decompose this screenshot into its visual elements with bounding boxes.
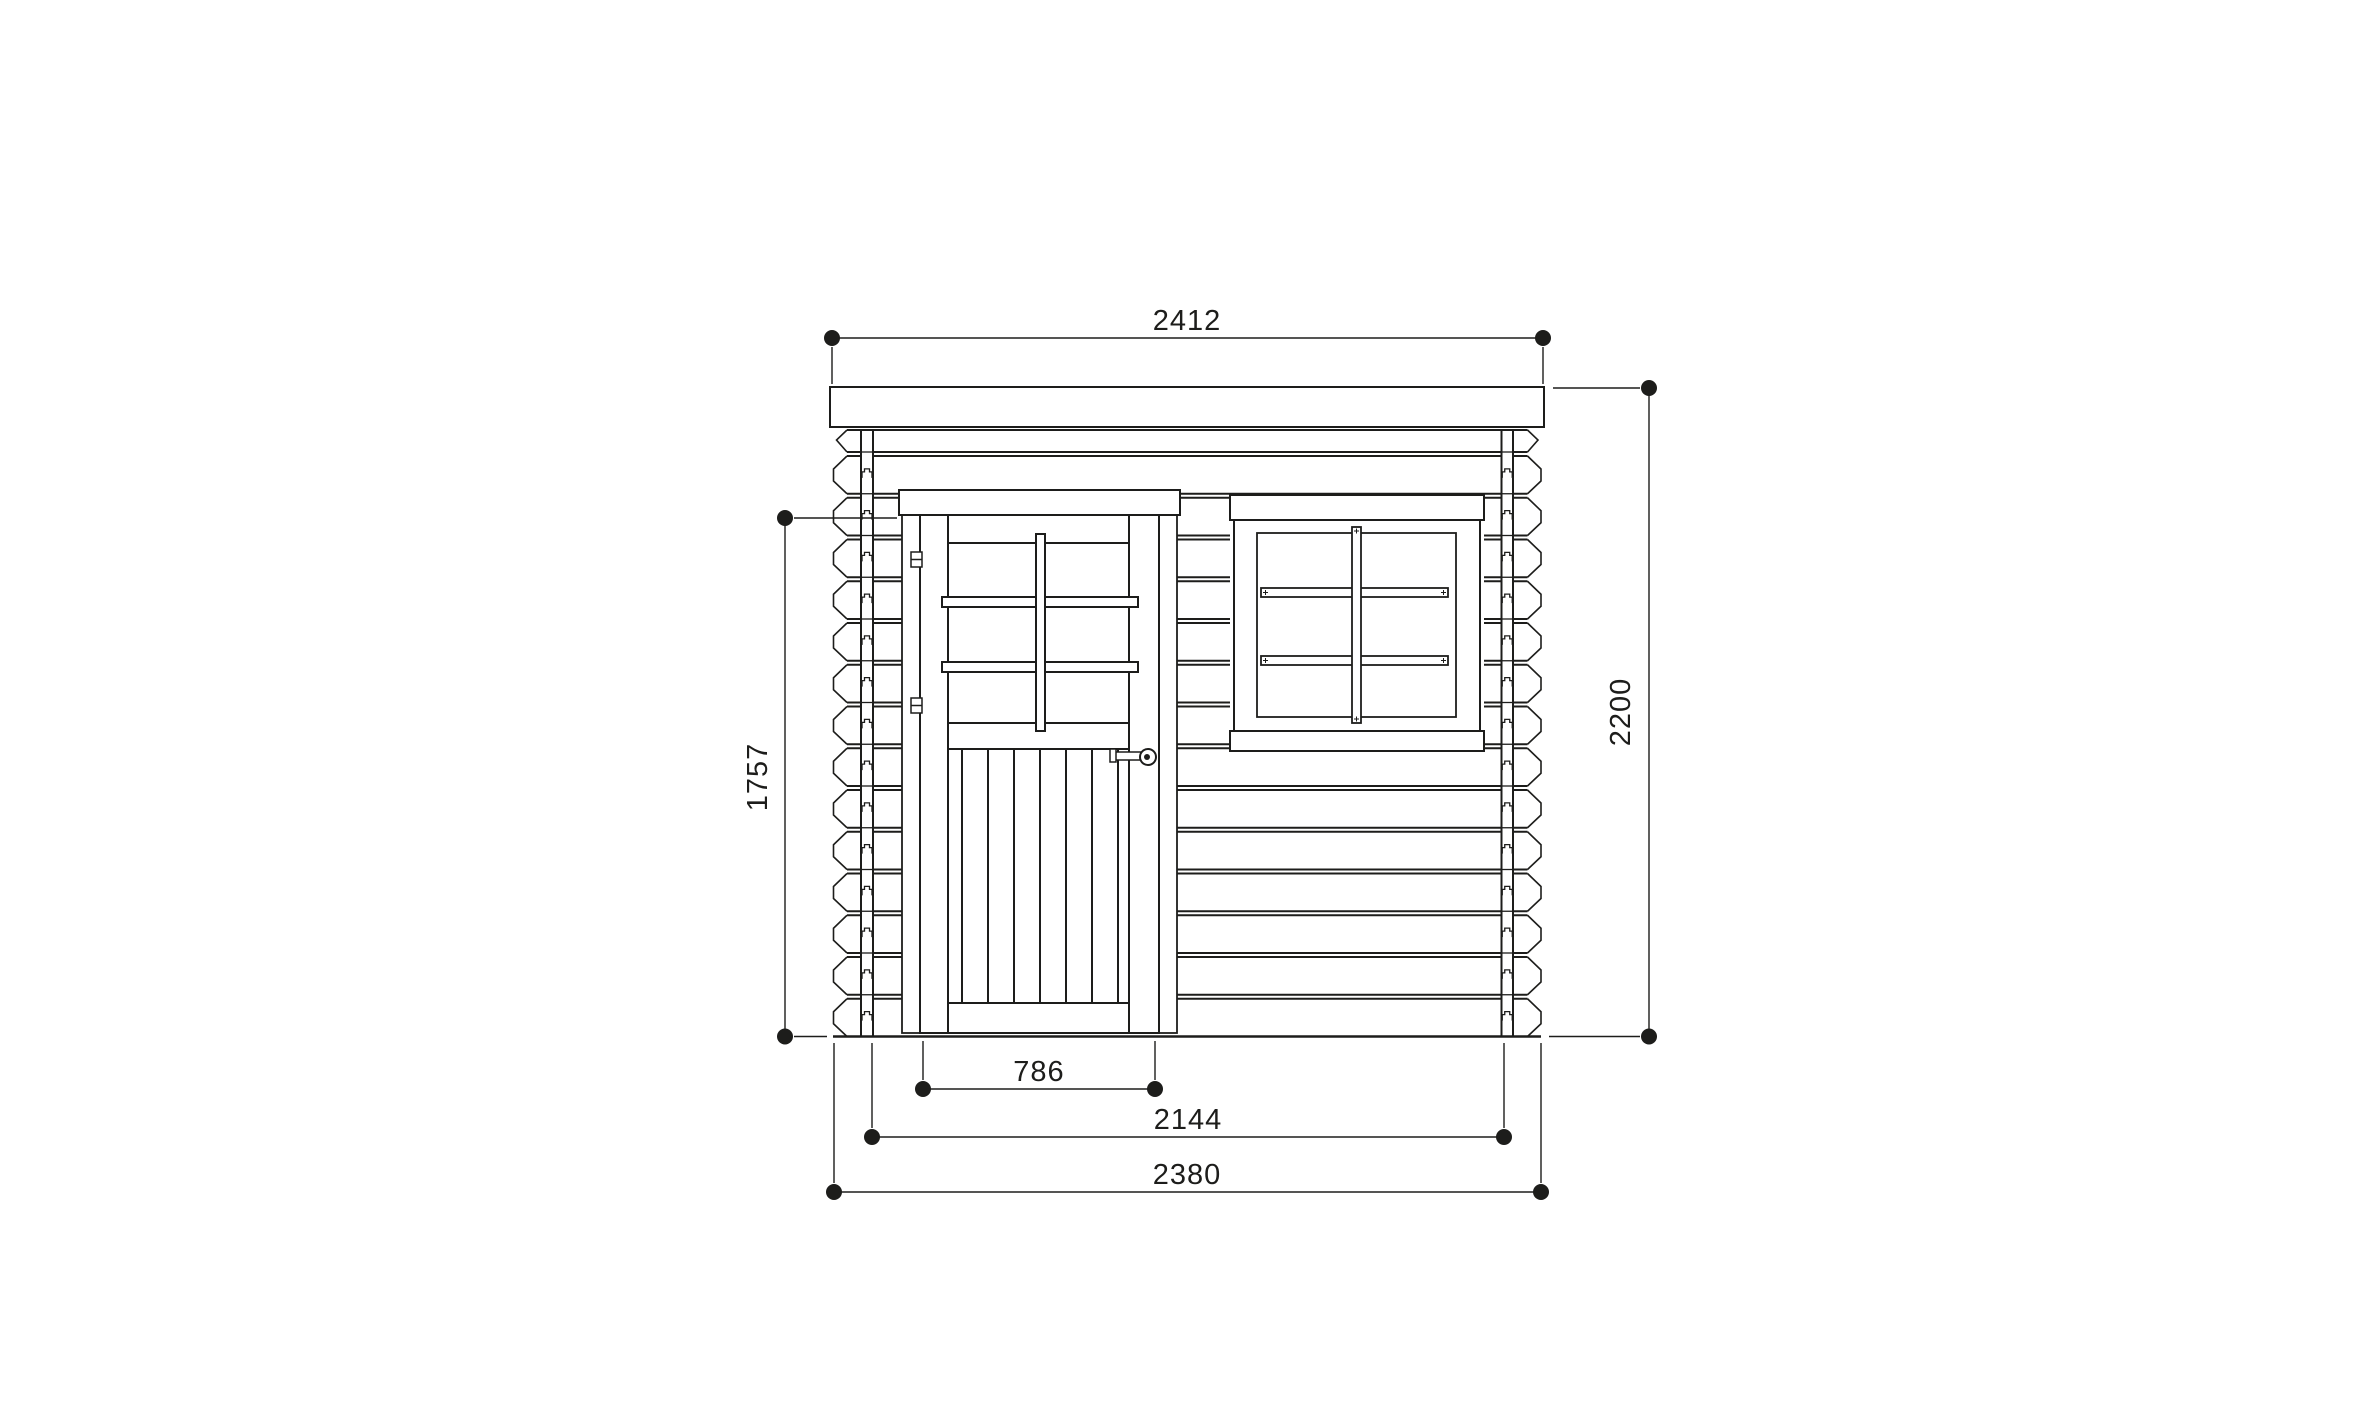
dimension-label-left-height: 1757 [742, 743, 774, 812]
dimension-endpoint-dot [1641, 380, 1657, 396]
log-tip-chamfer [1528, 999, 1542, 1037]
log-tip-chamfer [834, 957, 848, 995]
log-end-strip-mask [861, 430, 873, 1037]
log-tip-chamfer [834, 832, 848, 870]
log-tip-chamfer [1528, 665, 1542, 703]
door-header-trim [899, 490, 1180, 515]
window-sill [1230, 731, 1484, 751]
log-tip-chamfer [834, 581, 848, 619]
dimension-label-right-height: 2200 [1605, 678, 1637, 747]
log-tip-chamfer [1528, 540, 1542, 578]
right-corner-log-ends [1502, 430, 1542, 1037]
dimension-label-top-width: 2412 [1153, 305, 1222, 337]
dimension-label-wall-span: 2144 [1154, 1104, 1223, 1136]
dimension-endpoint-dot [777, 510, 793, 526]
dimension-endpoint-dot [1535, 330, 1551, 346]
log-tip-chamfer [834, 915, 848, 953]
dimension-endpoint-dot [1496, 1129, 1512, 1145]
dimension-label-door-width: 786 [1013, 1056, 1064, 1088]
door-handle-spindle [1144, 754, 1150, 760]
log-tip-chamfer [834, 874, 848, 912]
dimension-annotations: 2412 2200 1757 786 [742, 305, 1657, 1200]
log-tip-chamfer [1528, 874, 1542, 912]
log-tip-chamfer [1528, 623, 1542, 661]
elevation-drawing-canvas: 2412 2200 1757 786 [0, 0, 2375, 1425]
log-tip-chamfer [1528, 707, 1542, 745]
dimension-endpoint-dot [1533, 1184, 1549, 1200]
dimension-top-width: 2412 [824, 305, 1551, 384]
window-muntin-vertical [1352, 527, 1361, 723]
dimension-endpoint-dot [1147, 1081, 1163, 1097]
window-header-trim [1230, 495, 1484, 520]
dimension-endpoint-dot [824, 330, 840, 346]
dimension-wall-span: 2144 [864, 1043, 1512, 1145]
log-tip-chamfer [834, 748, 848, 786]
door-glazing-bar-vertical [1036, 534, 1045, 731]
dimension-right-height: 2200 [1549, 380, 1657, 1045]
log-end-strip-mask [1502, 430, 1514, 1037]
log-tip-chamfer [1528, 430, 1539, 452]
door-right-side-board [1159, 515, 1177, 1033]
log-tip-chamfer [837, 430, 848, 452]
log-tip-chamfer [834, 540, 848, 578]
log-tip-chamfer [834, 790, 848, 828]
log-tip-chamfer [834, 456, 848, 494]
log-tip-chamfer [834, 707, 848, 745]
log-tip-chamfer [1528, 748, 1542, 786]
door-handle-lever [1114, 752, 1141, 760]
log-tip-chamfer [1528, 456, 1542, 494]
dimension-label-overall-width: 2380 [1153, 1159, 1222, 1191]
log-tip-chamfer [834, 623, 848, 661]
door-left-side-board [902, 515, 920, 1033]
dimension-endpoint-dot [1641, 1029, 1657, 1045]
log-tip-chamfer [1528, 790, 1542, 828]
roof-slab [830, 387, 1544, 427]
dimension-endpoint-dot [915, 1081, 931, 1097]
window-assembly [1230, 495, 1484, 751]
log-tip-chamfer [834, 999, 848, 1037]
dimension-endpoint-dot [864, 1129, 880, 1145]
left-corner-log-ends [834, 430, 874, 1037]
door-handle-lever-end [1110, 749, 1116, 762]
dimension-endpoint-dot [777, 1029, 793, 1045]
door-assembly [902, 515, 1177, 1033]
log-tip-chamfer [834, 665, 848, 703]
log-tip-chamfer [1528, 498, 1542, 536]
log-tip-chamfer [1528, 581, 1542, 619]
log-tip-chamfer [1528, 832, 1542, 870]
dimension-door-width: 786 [915, 1041, 1163, 1097]
log-tip-chamfer [834, 498, 848, 536]
shed-front-elevation-drawing: 2412 2200 1757 786 [0, 0, 2375, 1425]
dimension-endpoint-dot [826, 1184, 842, 1200]
log-tip-chamfer [1528, 957, 1542, 995]
log-tip-chamfer [1528, 915, 1542, 953]
